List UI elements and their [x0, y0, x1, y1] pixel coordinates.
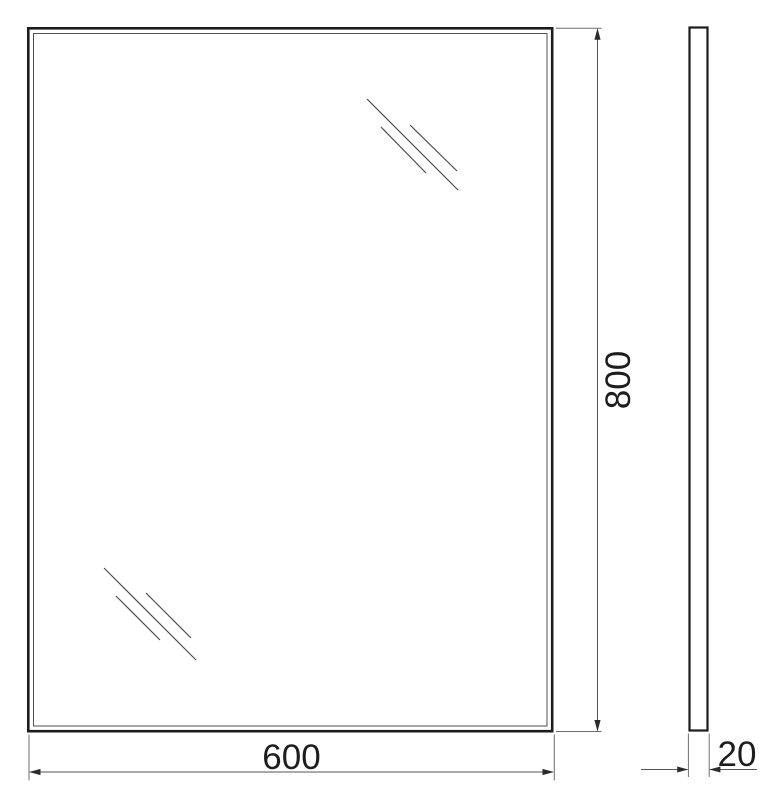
front-view-outer-outline [28, 28, 552, 731]
arrowhead-up-icon [594, 28, 600, 40]
arrowhead-down-icon [594, 720, 600, 732]
side-view [690, 28, 708, 731]
side-view-outline [690, 28, 708, 731]
technical-drawing: 600 800 20 [0, 0, 776, 800]
width-dimension-label: 600 [262, 738, 320, 777]
height-dimension: 800 [556, 28, 638, 731]
arrowhead-left-icon [29, 769, 41, 775]
height-dimension-label: 800 [599, 351, 638, 409]
depth-dimension-label: 20 [718, 735, 757, 774]
drawing-canvas: 600 800 20 [0, 0, 776, 800]
front-view [28, 28, 552, 731]
depth-dimension: 20 [641, 734, 757, 778]
width-dimension: 600 [29, 735, 554, 781]
arrowhead-right-icon [543, 769, 555, 775]
arrowhead-right-icon [677, 767, 688, 773]
